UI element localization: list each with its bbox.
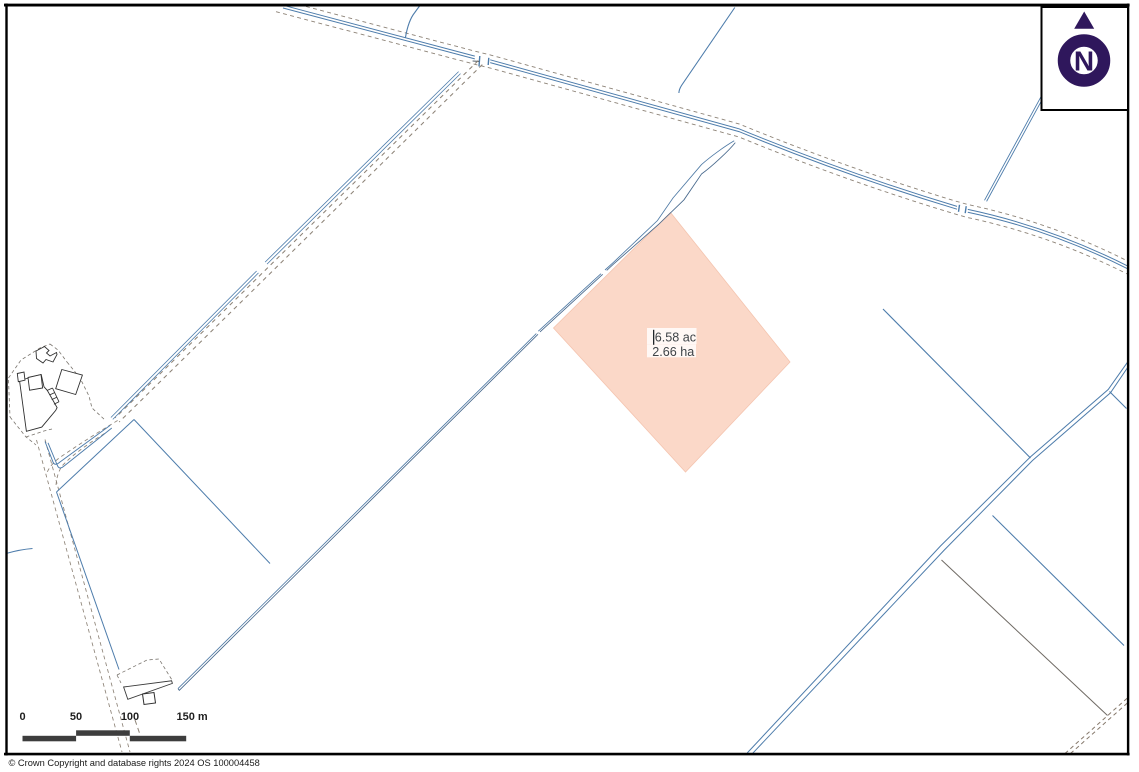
svg-text:100: 100 [121,711,139,723]
svg-text:2.66 ha: 2.66 ha [652,345,694,359]
svg-text:© Crown Copyright and database: © Crown Copyright and database rights 20… [9,758,260,768]
svg-text:6.58 ac: 6.58 ac [655,330,696,344]
svg-text:150 m: 150 m [177,711,208,723]
svg-text:50: 50 [70,711,82,723]
svg-text:N: N [1074,46,1094,77]
svg-text:0: 0 [19,711,25,723]
